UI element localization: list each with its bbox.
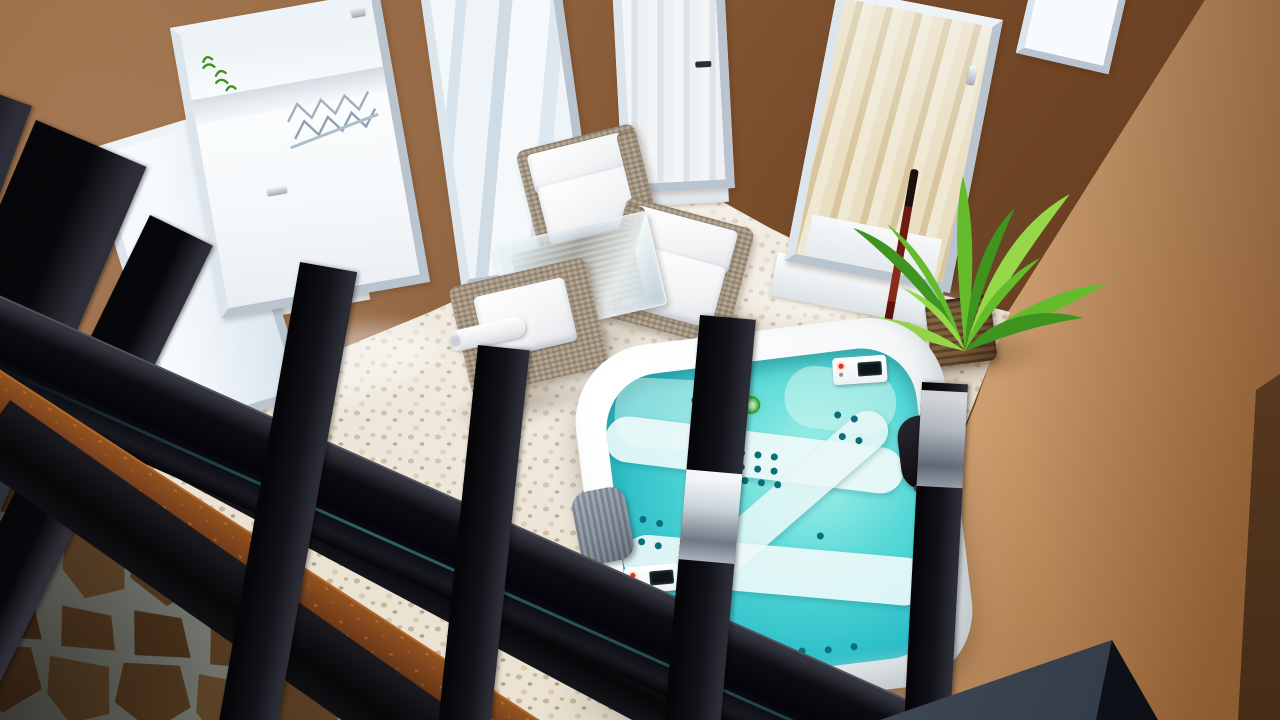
- chrome-segment: [917, 390, 968, 488]
- door-4-handle: [696, 61, 712, 68]
- status-led: [839, 373, 843, 377]
- display-screen: [649, 569, 674, 585]
- door-6-leaf: [1024, 0, 1119, 66]
- control-panel: [832, 355, 888, 386]
- display-screen: [857, 361, 882, 377]
- chrome-segment: [679, 469, 743, 564]
- spa-room-render: [0, 0, 1280, 720]
- power-led: [838, 364, 843, 369]
